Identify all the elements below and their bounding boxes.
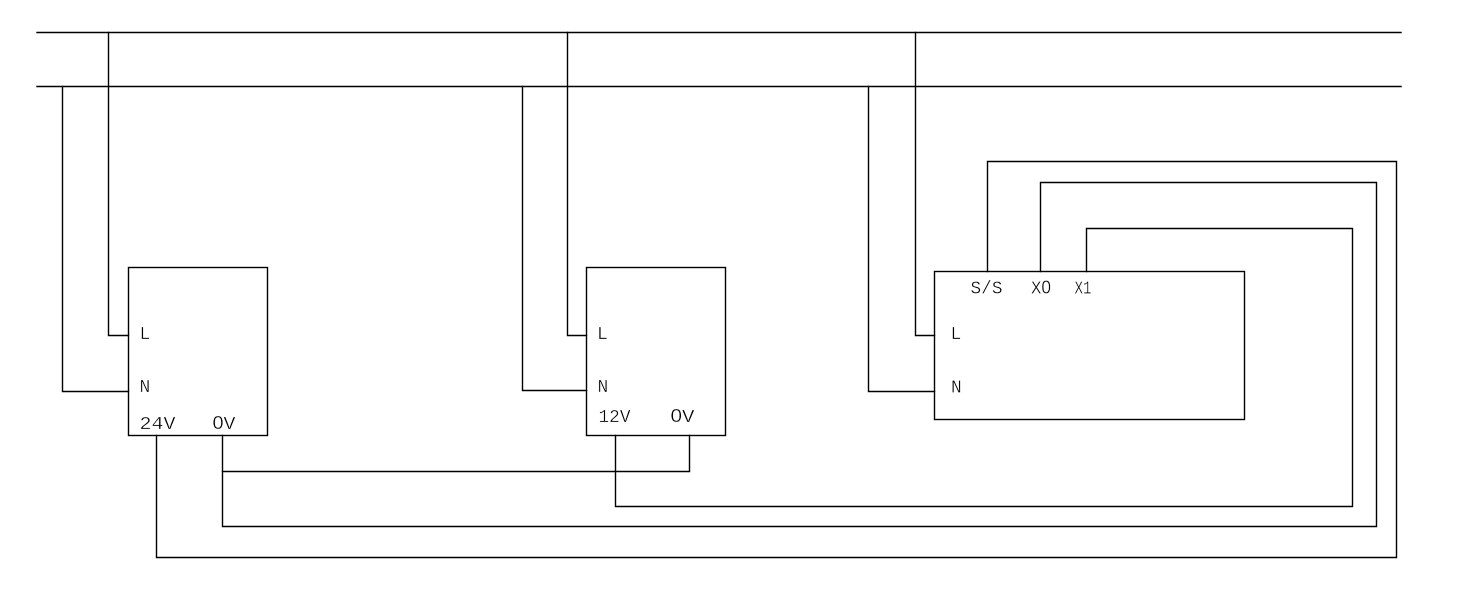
svg-text:24V: 24V [140,415,176,435]
svg-text:L: L [951,325,962,345]
svg-text:X1: X1 [1075,280,1092,300]
svg-text:12V: 12V [599,408,631,428]
svg-text:N: N [598,378,609,398]
svg-text:L: L [597,325,608,345]
svg-text:0V: 0V [671,406,695,428]
svg-text:L: L [140,325,151,345]
svg-text:S/S: S/S [971,280,1003,300]
svg-text:N: N [140,378,151,398]
svg-text:X0: X0 [1031,278,1051,300]
svg-text:N: N [951,379,962,399]
svg-text:0V: 0V [213,413,236,435]
